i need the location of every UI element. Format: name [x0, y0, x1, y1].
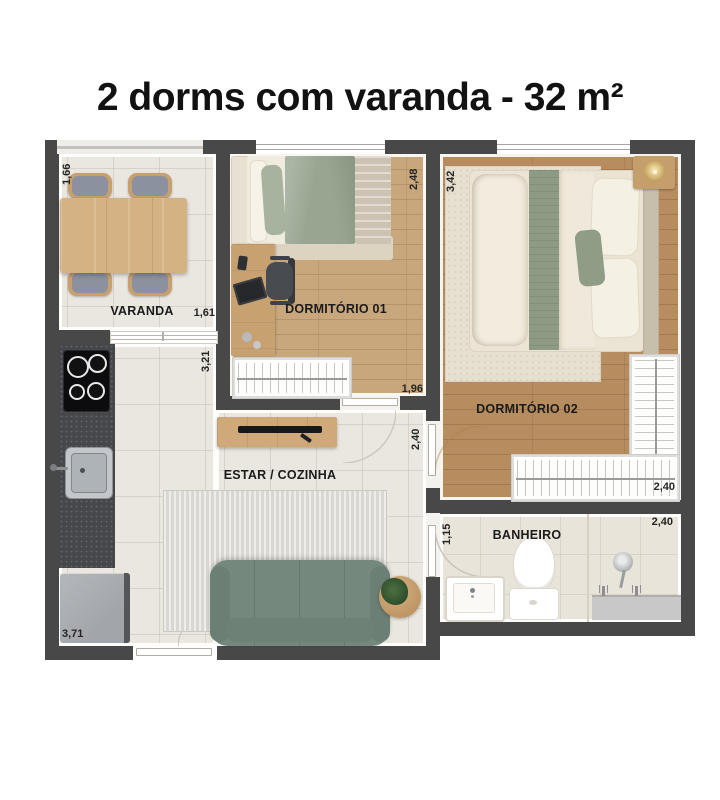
- cooktop-burner: [88, 354, 107, 373]
- dorm1-bottom-wall-left: [216, 396, 340, 410]
- dorm1-window: [256, 140, 385, 154]
- dim-banheiro-width: 2,40: [641, 516, 673, 528]
- dim-kitchen-length: 3,71: [62, 628, 83, 640]
- dim-dorm2-width: 2,40: [641, 481, 675, 493]
- shower-handle: [635, 586, 638, 596]
- dorm2-door-swing: [435, 426, 483, 474]
- dim-banheiro-depth: 1,15: [441, 524, 453, 545]
- dorm1-wardrobe: [233, 358, 351, 398]
- table-lamp-dot: [653, 170, 657, 174]
- dining-chair: [128, 173, 172, 199]
- dorm1-left-wall: [216, 140, 230, 410]
- dim-living-opening: 2,40: [410, 429, 422, 450]
- dorm2-closet-vertical: [630, 355, 679, 461]
- page-title: 2 dorms com varanda - 32 m²: [0, 76, 720, 120]
- toilet-bowl: [513, 536, 555, 592]
- dorm1-door-swing: [343, 410, 396, 463]
- toilet-flush-button: [529, 600, 537, 605]
- dim-varanda-depth: 1,66: [61, 164, 73, 185]
- cooktop-burner: [67, 356, 89, 378]
- dim-kitchen-wall: 3,21: [200, 351, 212, 372]
- sofa-backrest: [226, 618, 374, 642]
- dim-dorm1-width: 1,96: [391, 383, 423, 395]
- dorm1-bottom-wall-right: [400, 396, 440, 410]
- dining-chair: [68, 270, 112, 296]
- right-wall: [681, 140, 695, 636]
- shower-tray: [592, 595, 681, 620]
- desk-items: [242, 332, 252, 342]
- dorm2-headboard: [643, 166, 659, 356]
- refrigerator-hinge-strip: [124, 573, 130, 643]
- shower-handle: [602, 586, 605, 596]
- floor-plan-page: 2 dorms com varanda - 32 m²: [0, 0, 720, 800]
- tv-screen: [238, 426, 322, 433]
- cooktop-burner: [69, 384, 85, 400]
- floor-plan: VARANDA DORMITÓRIO 01 DORMITÓRIO 02 ESTA…: [45, 140, 695, 660]
- closet-rod: [655, 359, 657, 457]
- estar-cozinha-label: ESTAR / COZINHA: [195, 468, 365, 482]
- left-wall: [45, 140, 59, 660]
- dining-chair: [68, 173, 112, 199]
- dorm2-window: [497, 140, 630, 154]
- dorm1-blanket: [355, 156, 391, 244]
- varanda-railing: [57, 140, 203, 154]
- banheiro-bottom-wall: [426, 622, 695, 636]
- entrance-door-leaf: [136, 648, 212, 656]
- desk-phone: [237, 255, 248, 270]
- office-chair-arm: [270, 256, 290, 260]
- cooktop-burner: [87, 382, 105, 400]
- dorm2-bottom-wall: [426, 500, 695, 514]
- plant: [381, 578, 408, 605]
- varanda-sliding-door: [110, 331, 218, 344]
- kitchen-sink-basin: [71, 453, 107, 493]
- dining-table: [60, 198, 187, 273]
- dorm1-door-leaf: [342, 398, 398, 406]
- sink-faucet-knob: [50, 464, 57, 471]
- bottom-wall-right: [217, 646, 440, 660]
- dorm2-runner-sage: [529, 170, 559, 350]
- office-chair-seat: [266, 262, 293, 300]
- varanda-bottom-wall: [45, 330, 110, 344]
- dining-chair: [128, 270, 172, 296]
- dorm1-duvet: [285, 156, 355, 244]
- dim-dorm1-depth: 2,48: [408, 169, 420, 190]
- banheiro-label: BANHEIRO: [442, 528, 612, 542]
- closet-rod: [516, 478, 675, 480]
- wardrobe-rod: [237, 378, 347, 380]
- dorm2-duvet-fold: [472, 174, 528, 346]
- dorm2-closet-horizontal: [512, 455, 679, 501]
- dim-varanda-door: 1,61: [185, 307, 215, 319]
- sliding-door-divider: [162, 332, 164, 341]
- dorm1-label: DORMITÓRIO 01: [256, 302, 416, 316]
- vanity-faucet: [470, 588, 475, 593]
- dorm2-label: DORMITÓRIO 02: [442, 402, 612, 416]
- sink-drain: [80, 468, 85, 473]
- bottom-wall-left: [45, 646, 133, 660]
- dim-dorm2-depth: 3,42: [445, 171, 457, 192]
